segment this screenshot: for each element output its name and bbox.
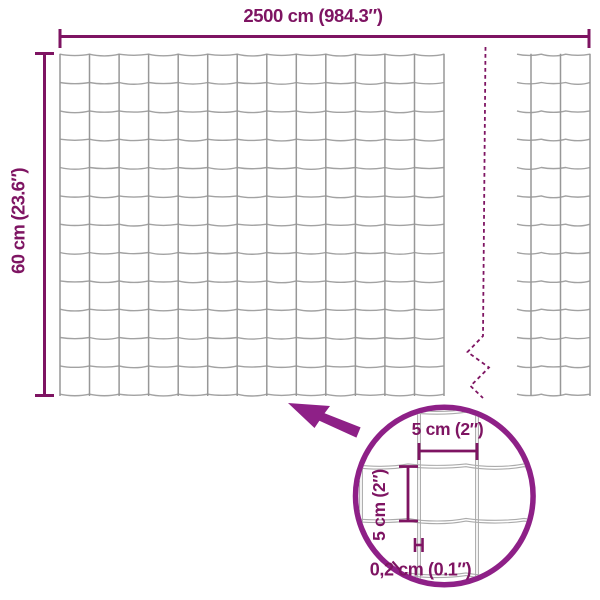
svg-text:5 cm (2″): 5 cm (2″) [369, 469, 389, 541]
svg-text:0,2 cm (0.1″): 0,2 cm (0.1″) [370, 560, 472, 580]
svg-text:60 cm (23.6″): 60 cm (23.6″) [8, 168, 29, 274]
svg-text:2500 cm (984.3″): 2500 cm (984.3″) [243, 5, 382, 26]
svg-text:5 cm (2″): 5 cm (2″) [412, 419, 484, 439]
